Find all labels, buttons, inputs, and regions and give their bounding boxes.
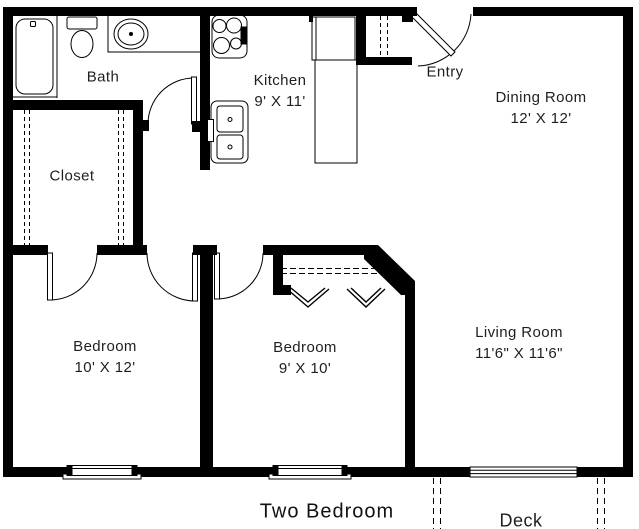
floor-plan: Bath Closet Kitchen 9' X 11' Entry Dinin… (0, 0, 639, 529)
room-label-entry: Entry (426, 62, 463, 83)
room-label-bedroom-1: Bedroom 10' X 12' (73, 336, 137, 378)
closet-shelf-dashes-bedroom-2 (281, 269, 389, 274)
angled-wall (364, 245, 415, 295)
room-dims: 9' X 10' (273, 358, 337, 379)
door-bedroom-1-hall-side (147, 253, 198, 301)
room-dims: 12' X 12' (495, 108, 586, 129)
stove-icon (212, 15, 247, 58)
door-bedroom-1-closet-side (48, 253, 98, 300)
room-label-dining-room: Dining Room 12' X 12' (495, 87, 586, 129)
room-name: Dining Room (495, 87, 586, 108)
room-name: Kitchen (254, 70, 307, 91)
kitchen-sink-icon (208, 101, 249, 163)
plan-title: Two Bedroom (260, 501, 394, 524)
refrigerator-icon (312, 17, 355, 60)
room-dims: 11'6" X 11'6" (475, 343, 563, 364)
room-label-bath: Bath (87, 67, 119, 88)
kitchen-counter-icon (315, 60, 357, 163)
window-bedroom-2 (269, 466, 351, 480)
entry-door-icon (410, 11, 471, 66)
room-name: Entry (426, 62, 463, 83)
window-bedroom-1 (63, 466, 141, 480)
sliding-glass-door-icon (470, 467, 577, 477)
room-name: Bath (87, 67, 119, 88)
room-dims: 10' X 12' (73, 357, 137, 378)
room-label-deck: Deck (499, 511, 542, 529)
bifold-doors-icon (287, 288, 385, 307)
room-name: Closet (50, 166, 95, 187)
room-label-closet: Closet (50, 166, 95, 187)
room-dims: 9' X 11' (254, 91, 307, 112)
bathroom-sink-icon (108, 16, 200, 52)
room-label-bedroom-2: Bedroom 9' X 10' (273, 337, 337, 379)
room-name: Deck (499, 511, 542, 529)
toilet-icon (67, 17, 97, 58)
room-label-kitchen: Kitchen 9' X 11' (254, 70, 307, 112)
bathtub-icon (13, 16, 57, 98)
room-name: Bedroom (73, 336, 137, 357)
room-name: Living Room (475, 322, 563, 343)
door-bath (148, 77, 197, 124)
room-name: Bedroom (273, 337, 337, 358)
door-bedroom-2 (215, 253, 264, 299)
room-label-living-room: Living Room 11'6" X 11'6" (475, 322, 563, 364)
closet-rod-dashes-entry-closet (381, 16, 388, 57)
